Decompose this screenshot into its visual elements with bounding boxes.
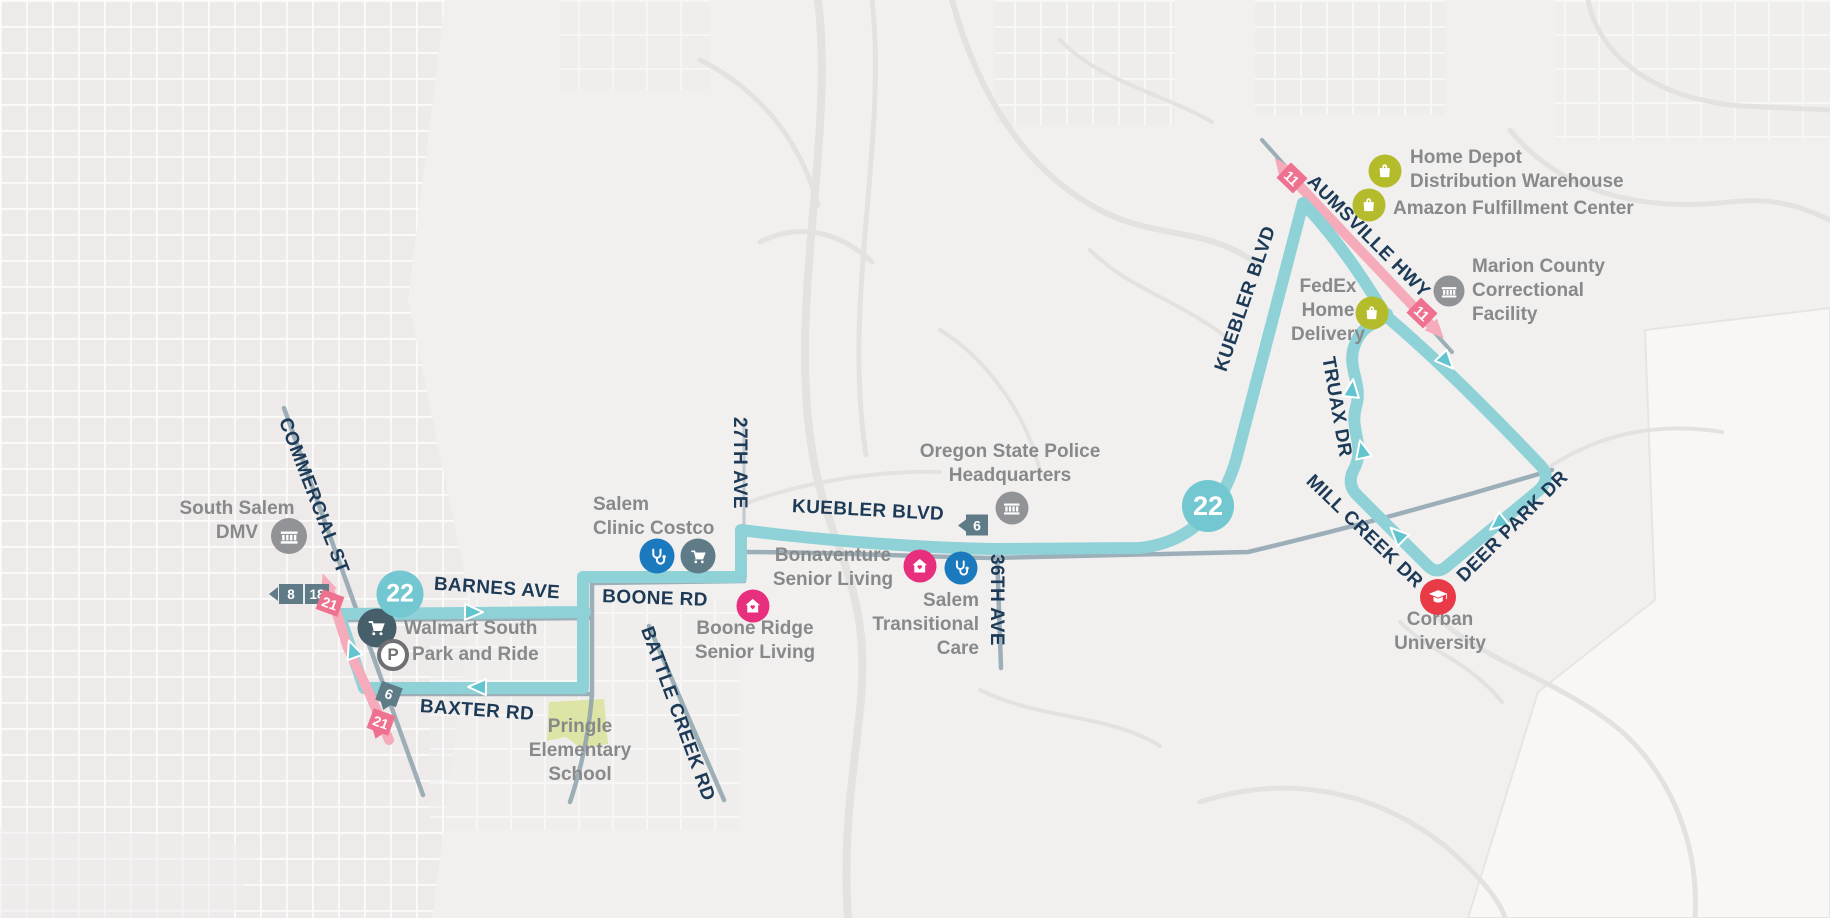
label-pringle-elementary-school: Pringle Elementary School bbox=[529, 715, 631, 787]
label-line: Senior Living bbox=[695, 641, 815, 665]
label-line: Elementary bbox=[529, 739, 631, 763]
grad-cap-glyph bbox=[1427, 586, 1449, 608]
route-number: 11 bbox=[1281, 167, 1303, 189]
label-salem-transitional-care: Salem Transitional Care bbox=[872, 589, 979, 661]
route-number: 6 bbox=[383, 685, 396, 703]
senior-housing-icon bbox=[737, 590, 770, 623]
basemap-canvas bbox=[0, 0, 1830, 918]
label-line: University bbox=[1394, 632, 1486, 656]
label-line: Distribution Warehouse bbox=[1410, 170, 1624, 194]
label-line: Walmart South bbox=[404, 617, 537, 641]
route-number: 22 bbox=[386, 580, 414, 609]
label-park-and-ride: Park and Ride bbox=[412, 643, 539, 667]
bag-glyph bbox=[1359, 195, 1379, 215]
route-22-badge-west: 22 bbox=[377, 571, 424, 618]
label-line: Facility bbox=[1472, 303, 1605, 327]
shopping-bag-icon bbox=[1353, 189, 1386, 222]
label-line: Oregon State Police bbox=[920, 440, 1101, 464]
government-glyph bbox=[1439, 281, 1458, 300]
parking-letter: P bbox=[387, 645, 398, 665]
street-label-text: 27TH AVE bbox=[729, 417, 750, 509]
label-line: Salem bbox=[872, 589, 979, 613]
label-salem-clinic-costco: Salem Clinic Costco bbox=[593, 493, 714, 541]
shopping-bag-icon bbox=[1369, 155, 1402, 188]
label-line: Bonaventure bbox=[773, 544, 893, 568]
label-line: Correctional bbox=[1472, 279, 1605, 303]
label-line: Marion County bbox=[1472, 255, 1605, 279]
west-arrow-icon bbox=[958, 519, 966, 531]
government-icon bbox=[271, 518, 307, 554]
label-line: School bbox=[529, 763, 631, 787]
house-heart-glyph bbox=[910, 556, 930, 576]
government-glyph bbox=[1002, 498, 1022, 518]
government-icon bbox=[996, 492, 1029, 525]
label-line: South Salem bbox=[179, 497, 294, 521]
label-line: Care bbox=[872, 637, 979, 661]
graduation-cap-icon bbox=[1420, 579, 1456, 615]
label-bonaventure-senior-living: Bonaventure Senior Living bbox=[773, 544, 893, 592]
label-line: Headquarters bbox=[920, 464, 1101, 488]
route-22-badge-east: 22 bbox=[1182, 480, 1234, 532]
badge-divider bbox=[303, 584, 305, 604]
label-boone-ridge-senior-living: Boone Ridge Senior Living bbox=[695, 617, 815, 665]
parking-icon: P bbox=[377, 639, 409, 671]
label-marion-county-correctional-facility: Marion County Correctional Facility bbox=[1472, 255, 1605, 327]
label-line: Delivery bbox=[1291, 323, 1365, 347]
label-corban-university: Corban University bbox=[1394, 608, 1486, 656]
route-number: 6 bbox=[973, 517, 981, 533]
street-label-36th-ave: 36TH AVE bbox=[985, 554, 1007, 646]
bag-glyph bbox=[1375, 161, 1395, 181]
label-line: Home Depot bbox=[1410, 146, 1624, 170]
street-label-text: 36TH AVE bbox=[986, 554, 1007, 646]
senior-housing-icon bbox=[904, 550, 937, 583]
stethoscope-glyph bbox=[951, 558, 971, 578]
label-walmart-south: Walmart South bbox=[404, 617, 537, 641]
label-oregon-state-police-headquarters: Oregon State Police Headquarters bbox=[920, 440, 1101, 488]
route-number: 8 bbox=[279, 584, 303, 604]
label-line: Home bbox=[1291, 299, 1365, 323]
shopping-cart-icon bbox=[681, 539, 716, 574]
government-glyph bbox=[278, 525, 300, 547]
label-fedex-home-delivery: FedEx Home Delivery bbox=[1291, 275, 1365, 347]
street-label-boone-rd: BOONE RD bbox=[602, 586, 708, 612]
bag-glyph bbox=[1362, 303, 1382, 323]
shopping-bag-icon bbox=[1356, 297, 1389, 330]
label-amazon-fulfillment-center: Amazon Fulfillment Center bbox=[1393, 197, 1634, 221]
label-line: Amazon Fulfillment Center bbox=[1393, 197, 1634, 221]
cart-glyph bbox=[365, 616, 389, 640]
route-6-badge-kuebler: 6 bbox=[966, 515, 988, 536]
label-line: FedEx bbox=[1291, 275, 1365, 299]
label-line: Salem bbox=[593, 493, 714, 517]
route-map: COMMERCIAL ST BARNES AVE BOONE RD BAXTER… bbox=[0, 0, 1830, 918]
house-heart-glyph bbox=[743, 596, 763, 616]
route-number: 22 bbox=[1193, 491, 1223, 522]
label-line: Park and Ride bbox=[412, 643, 539, 667]
street-label-text: BOONE RD bbox=[602, 586, 708, 611]
route-number: 21 bbox=[320, 593, 340, 613]
label-home-depot-distribution-warehouse: Home Depot Distribution Warehouse bbox=[1410, 146, 1624, 194]
street-label-27th-ave: 27TH AVE bbox=[728, 417, 750, 509]
cart-glyph bbox=[687, 545, 709, 567]
medical-icon bbox=[640, 539, 675, 574]
label-line: Pringle bbox=[529, 715, 631, 739]
west-arrow-icon bbox=[269, 587, 278, 601]
label-line: Transitional bbox=[872, 613, 979, 637]
medical-icon bbox=[945, 552, 978, 585]
label-line: Clinic Costco bbox=[593, 517, 714, 541]
government-icon bbox=[1434, 276, 1465, 307]
stethoscope-glyph bbox=[646, 545, 668, 567]
route-number: 11 bbox=[1411, 302, 1433, 324]
